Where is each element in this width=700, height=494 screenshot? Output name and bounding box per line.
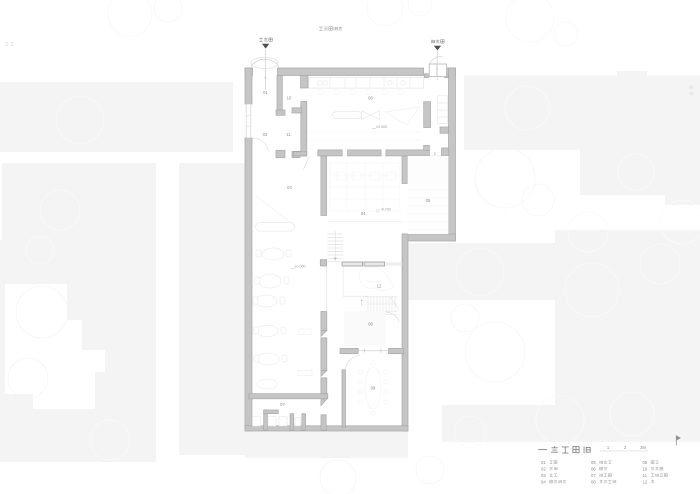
svg-text:07: 07: [280, 402, 285, 407]
svg-text:12: 12: [377, 284, 382, 289]
svg-text:01: 01: [541, 460, 546, 465]
svg-text:10: 10: [643, 467, 648, 472]
svg-text:04: 04: [361, 211, 366, 216]
svg-text:04: 04: [541, 480, 546, 485]
svg-text:3M: 3M: [640, 445, 646, 450]
svg-text:08: 08: [591, 480, 596, 485]
svg-text:±0.000: ±0.000: [376, 125, 387, 129]
svg-text:01: 01: [263, 90, 268, 95]
svg-text:11: 11: [643, 473, 648, 478]
svg-text:±0.000: ±0.000: [295, 265, 306, 269]
svg-text:03: 03: [541, 473, 546, 478]
svg-text:12: 12: [643, 480, 648, 485]
svg-text:02: 02: [541, 467, 546, 472]
svg-text:1: 1: [265, 76, 267, 80]
svg-text:05: 05: [426, 198, 431, 203]
svg-text:11: 11: [286, 132, 291, 137]
svg-text:03: 03: [287, 185, 292, 190]
svg-text:09: 09: [371, 386, 376, 391]
svg-text:07: 07: [591, 473, 596, 478]
svg-text:-0.700: -0.700: [381, 208, 391, 212]
svg-text:09: 09: [643, 460, 648, 465]
svg-text:08: 08: [368, 322, 373, 327]
svg-text:05: 05: [591, 460, 596, 465]
svg-text:2: 2: [434, 152, 436, 156]
svg-text:06: 06: [368, 96, 373, 101]
svg-text:02: 02: [263, 132, 268, 137]
svg-text:10: 10: [287, 96, 292, 101]
svg-text:06: 06: [591, 467, 596, 472]
